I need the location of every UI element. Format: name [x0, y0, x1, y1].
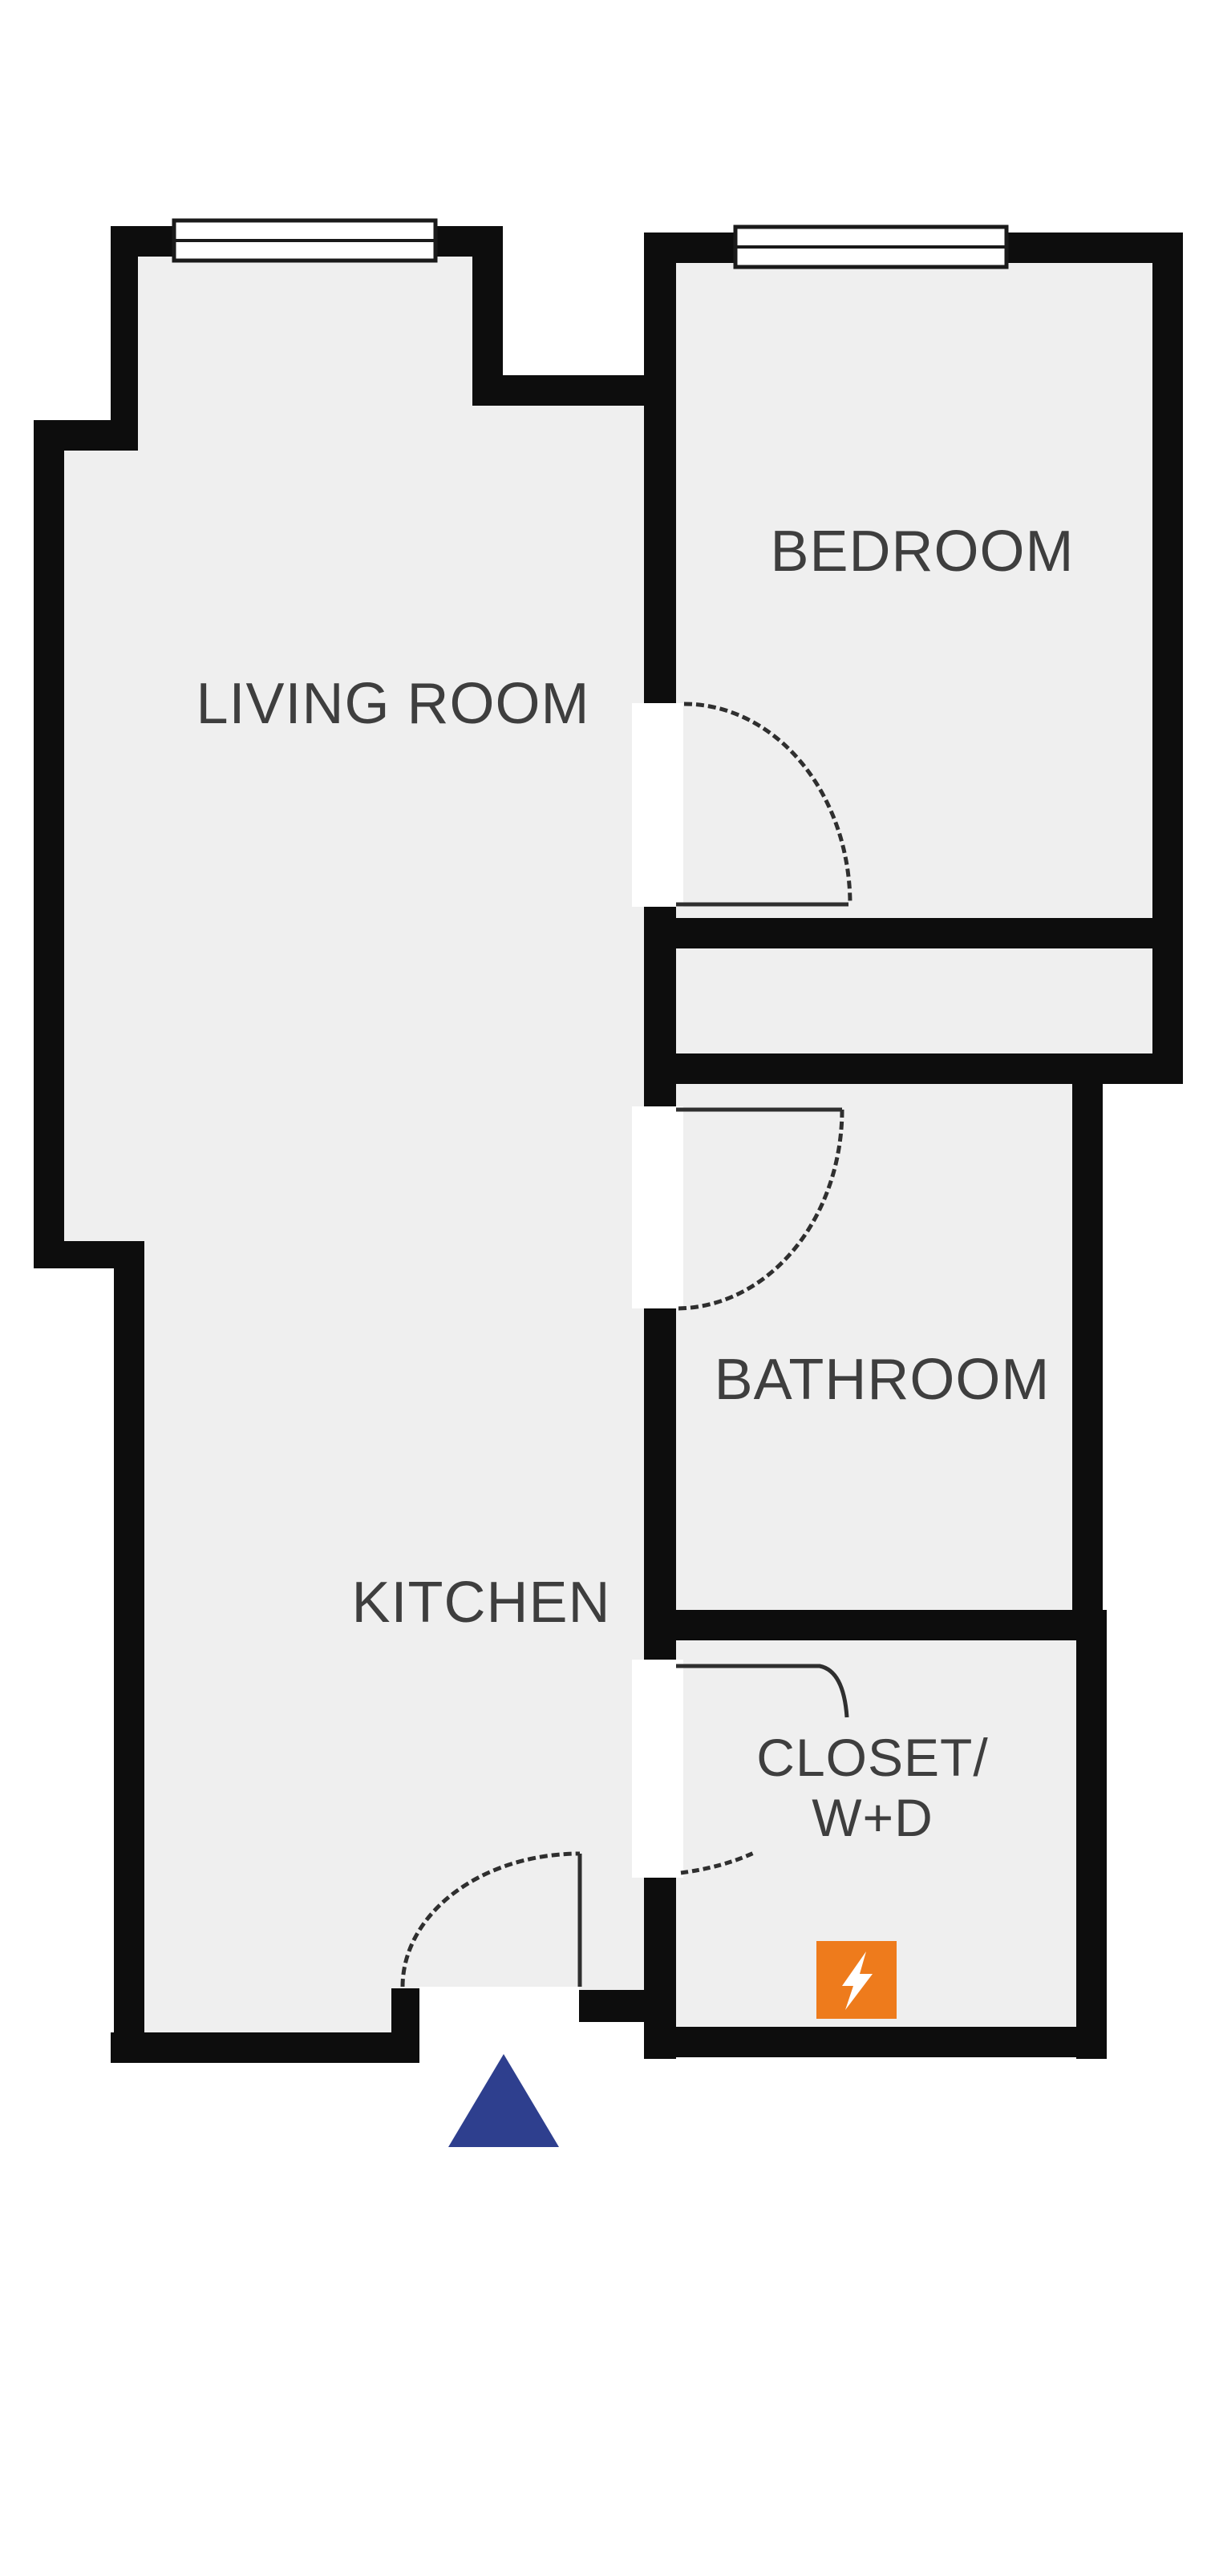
label-bedroom: BEDROOM: [770, 520, 1074, 584]
wall-partition-1: [644, 233, 676, 703]
opening-closet-door: [632, 1660, 683, 1878]
label-living-room: LIVING ROOM: [196, 672, 589, 736]
power-icon: [816, 1941, 897, 2019]
label-kitchen: KITCHEN: [351, 1571, 610, 1635]
wall-closet-right: [1076, 1610, 1107, 2059]
wall-entry-jamb: [391, 1988, 419, 2035]
opening-entry-door: [419, 1987, 579, 2071]
wall-closet-bottom: [644, 2027, 1107, 2057]
wall-right-upper: [1152, 233, 1183, 1084]
floor-nook: [659, 935, 1168, 1070]
wall-left-upper: [111, 226, 138, 428]
window-living-room: [174, 220, 435, 261]
floor-bedroom: [659, 249, 1168, 935]
wall-left-long: [34, 420, 64, 1268]
floor-areas: [48, 241, 1168, 2043]
window-bedroom: [735, 227, 1006, 267]
opening-bedroom-door: [632, 703, 683, 907]
wall-bathroom-bottom: [644, 1610, 1104, 1640]
wall-kitchen-bottom: [111, 2032, 419, 2063]
label-closet-line2: W+D: [812, 1788, 933, 1847]
opening-bathroom-door: [632, 1106, 683, 1308]
label-closet-line1: CLOSET/: [756, 1728, 988, 1787]
wall-bedroom-bottom: [644, 918, 1183, 948]
wall-partition-3: [644, 1308, 676, 1660]
wall-kitchen-left: [114, 1241, 144, 2063]
wall-bathroom-right: [1072, 1053, 1103, 1639]
label-bathroom: BATHROOM: [715, 1348, 1051, 1412]
floorplan-page: LIVING ROOM BEDROOM BATHROOM KITCHEN CLO…: [0, 0, 1219, 2576]
floorplan-svg: LIVING ROOM BEDROOM BATHROOM KITCHEN CLO…: [0, 0, 1219, 2576]
